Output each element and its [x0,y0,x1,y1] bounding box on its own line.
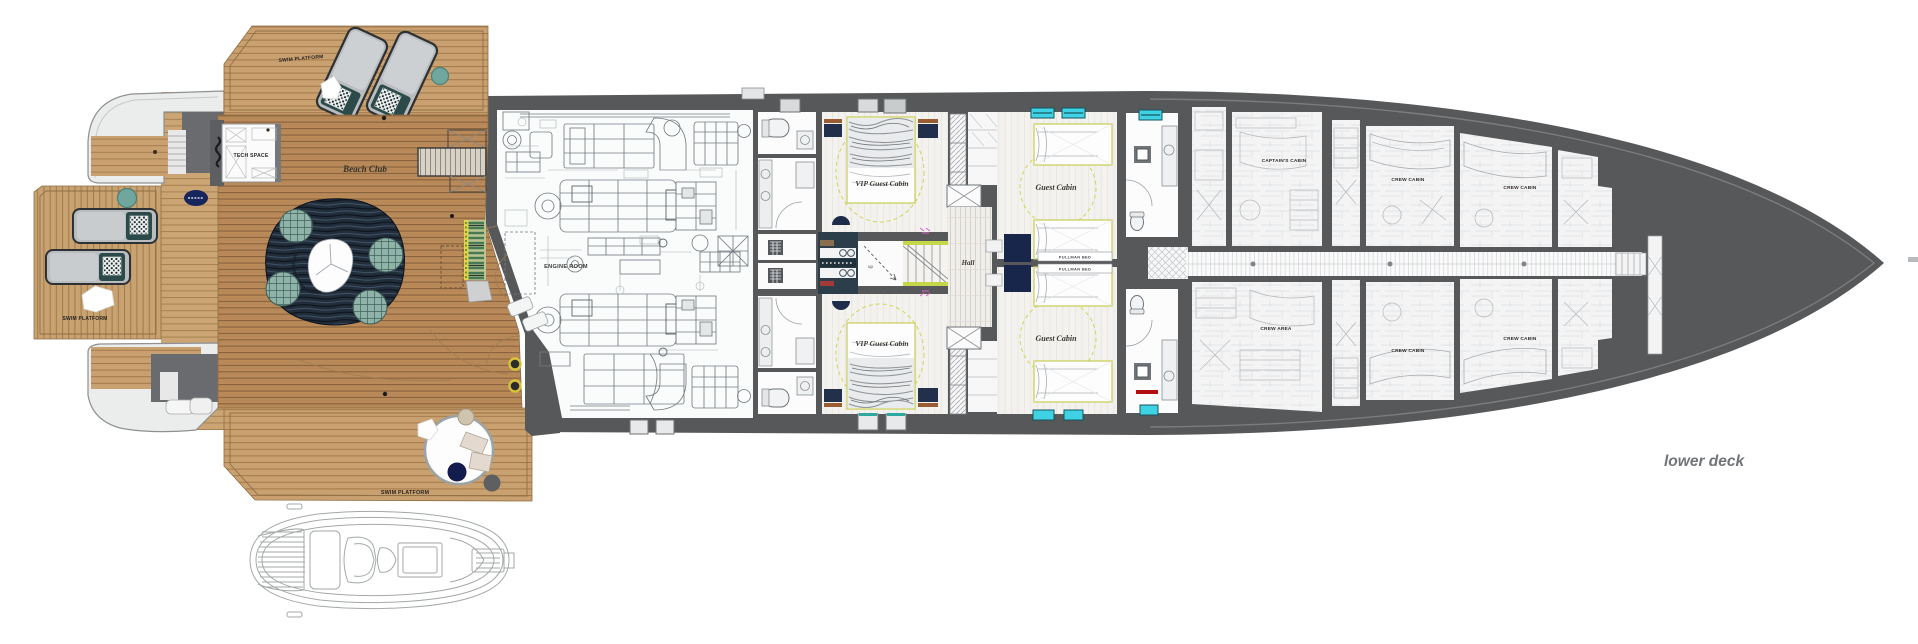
svg-text:Hall: Hall [961,259,975,267]
svg-text:VIP Guest Cabin: VIP Guest Cabin [855,339,908,348]
svg-text:ENGINE ROOM: ENGINE ROOM [544,264,588,270]
svg-text:PULLMAN BED: PULLMAN BED [1059,255,1091,260]
svg-text:CREW AREA: CREW AREA [1260,326,1292,332]
svg-text:CAPTAIN'S CABIN: CAPTAIN'S CABIN [1262,158,1307,164]
svg-text:CREW CABIN: CREW CABIN [1503,185,1537,191]
svg-text:SWIM PLATFORM: SWIM PLATFORM [63,316,108,322]
svg-text:up: up [868,264,873,269]
svg-text:VIP Guest Cabin: VIP Guest Cabin [855,179,908,188]
svg-text:lower deck: lower deck [1664,453,1745,470]
svg-text:SWIM PLATFORM: SWIM PLATFORM [381,490,430,496]
svg-text:CREW CABIN: CREW CABIN [1391,177,1425,183]
svg-text:Beach Club: Beach Club [342,164,387,174]
svg-text:PULLMAN BED: PULLMAN BED [1059,267,1091,272]
svg-text:Guest Cabin: Guest Cabin [1035,183,1077,192]
svg-text:CREW CABIN: CREW CABIN [1391,348,1425,354]
svg-text:TECH SPACE: TECH SPACE [233,153,268,159]
svg-text:CREW CABIN: CREW CABIN [1503,336,1537,342]
svg-text:Guest Cabin: Guest Cabin [1035,334,1077,343]
